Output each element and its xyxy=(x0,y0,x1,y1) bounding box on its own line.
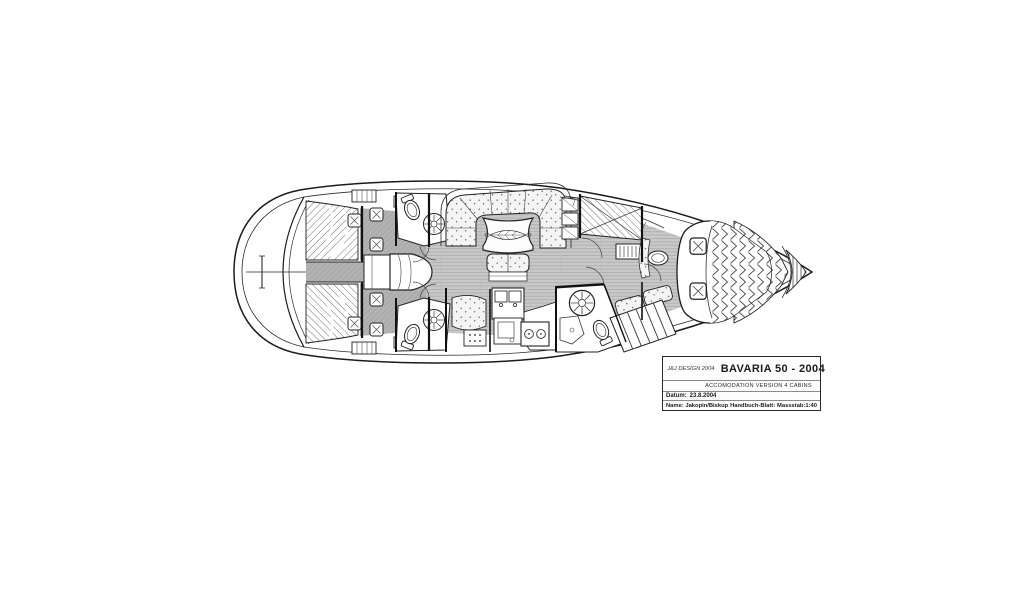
galley-refrigerator xyxy=(464,330,486,346)
accommodation-subtitle: ACCOMODATION VERSION 4 CABINS xyxy=(663,381,820,392)
yacht-deck-plan xyxy=(0,0,1024,600)
date-row: Datum: 23.8.2004 xyxy=(663,392,820,401)
model-title: BAVARIA 50 - 2004 xyxy=(721,363,825,375)
scale-field: Massstab:1:40 xyxy=(777,403,817,409)
fwd-table xyxy=(648,251,668,265)
stove xyxy=(521,322,549,346)
pillow xyxy=(690,238,706,254)
name-field: Name: Jakopin/Biskup xyxy=(666,403,728,409)
salon-lockers xyxy=(562,198,578,239)
washbasin-icon xyxy=(569,290,594,315)
washbasin-icon xyxy=(424,310,445,331)
title-block: J&J DESIGN 2004 BAVARIA 50 - 2004 ACCOMO… xyxy=(662,356,821,411)
louver-locker xyxy=(616,244,642,259)
date-value: 23.8.2004 xyxy=(690,393,717,399)
title-block-header: J&J DESIGN 2004 BAVARIA 50 - 2004 xyxy=(663,357,820,381)
meta-row: Name: Jakopin/Biskup Handbuch-Blatt: Mas… xyxy=(663,401,820,410)
date-label: Datum: xyxy=(666,393,687,399)
sheet-field: Handbuch-Blatt: xyxy=(730,403,775,409)
galley-seat xyxy=(452,295,486,330)
salon-bench xyxy=(487,254,529,281)
designer-credit: J&J DESIGN 2004 xyxy=(667,366,714,372)
pillow xyxy=(690,283,706,299)
drawing-sheet: J&J DESIGN 2004 BAVARIA 50 - 2004 ACCOMO… xyxy=(0,0,1024,600)
galley-sink-unit xyxy=(492,288,524,344)
